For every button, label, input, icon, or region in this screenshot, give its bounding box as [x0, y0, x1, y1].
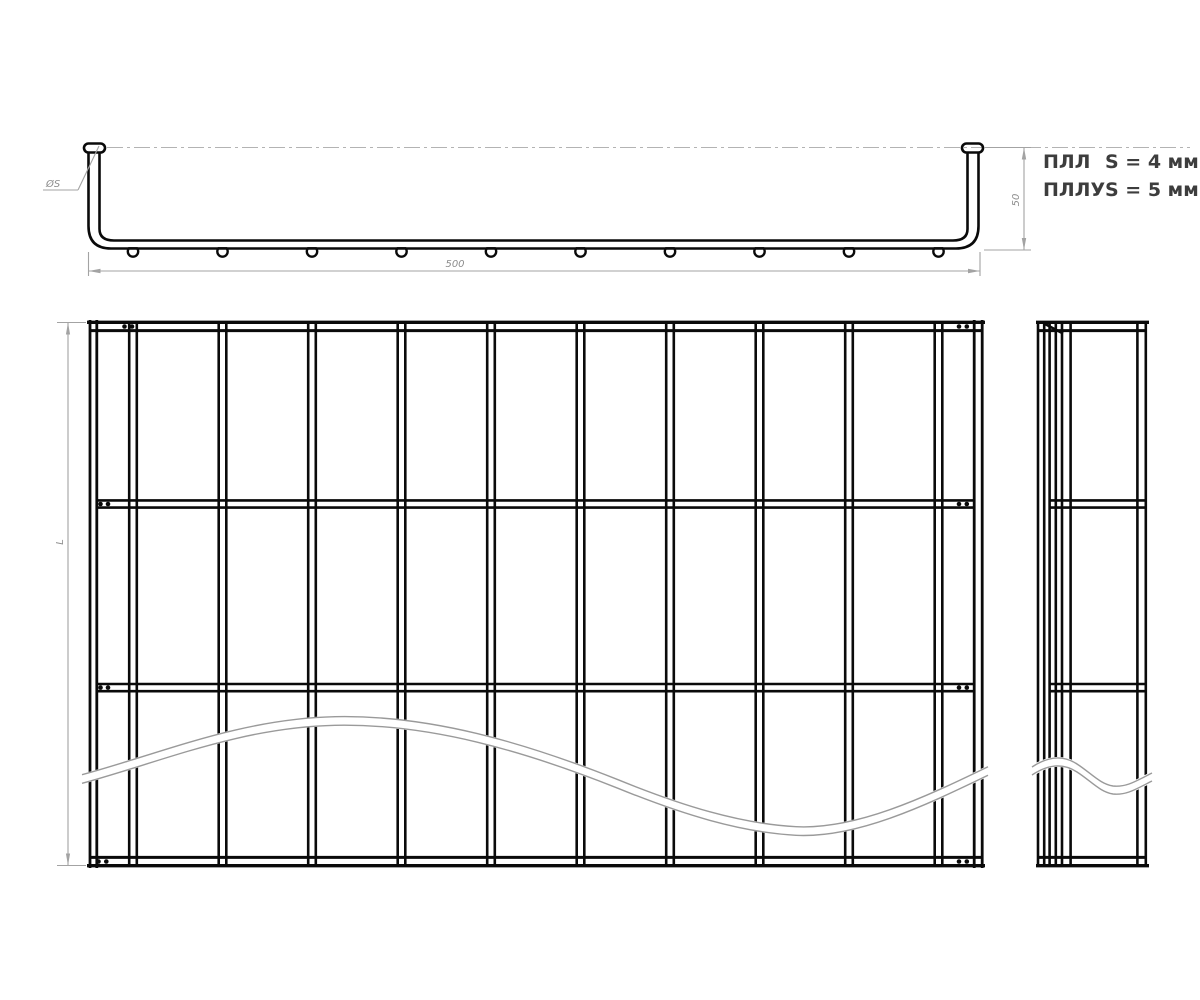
spec-series-name: ПЛЛУ — [1043, 176, 1105, 204]
dim-profile-height: 50 — [984, 148, 1031, 251]
profile-wire-contour — [84, 144, 983, 249]
wire-diameter-label: ØS — [45, 178, 61, 190]
spec-annotation: ПЛЛ S = 4 мм ПЛЛУ S = 5 мм — [1043, 148, 1199, 204]
dim-width-label: 500 — [445, 259, 464, 270]
front-view: L — [55, 320, 988, 868]
profile-view: 500 50 ØS — [43, 144, 1190, 277]
spec-row-pll: ПЛЛ S = 4 мм — [1043, 148, 1199, 176]
dim-height-label: 50 — [1011, 194, 1022, 207]
horizontal-rails — [87, 322, 985, 865]
spec-series-value: S = 4 мм — [1105, 148, 1199, 176]
wire-end-cap-left — [84, 144, 105, 153]
spec-series-value: S = 5 мм — [1105, 176, 1199, 204]
dim-length-label: L — [55, 539, 66, 545]
technical-drawing: 500 50 ØS — [0, 0, 1200, 1000]
spec-row-pllu: ПЛЛУ S = 5 мм — [1043, 176, 1199, 204]
drawing-canvas: 500 50 ØS — [0, 0, 1200, 1000]
spec-series-name: ПЛЛ — [1043, 148, 1105, 176]
side-view — [1032, 321, 1152, 867]
frame-edges — [90, 320, 982, 868]
vertical-wires — [129, 324, 942, 865]
dim-front-length: L — [55, 323, 86, 866]
